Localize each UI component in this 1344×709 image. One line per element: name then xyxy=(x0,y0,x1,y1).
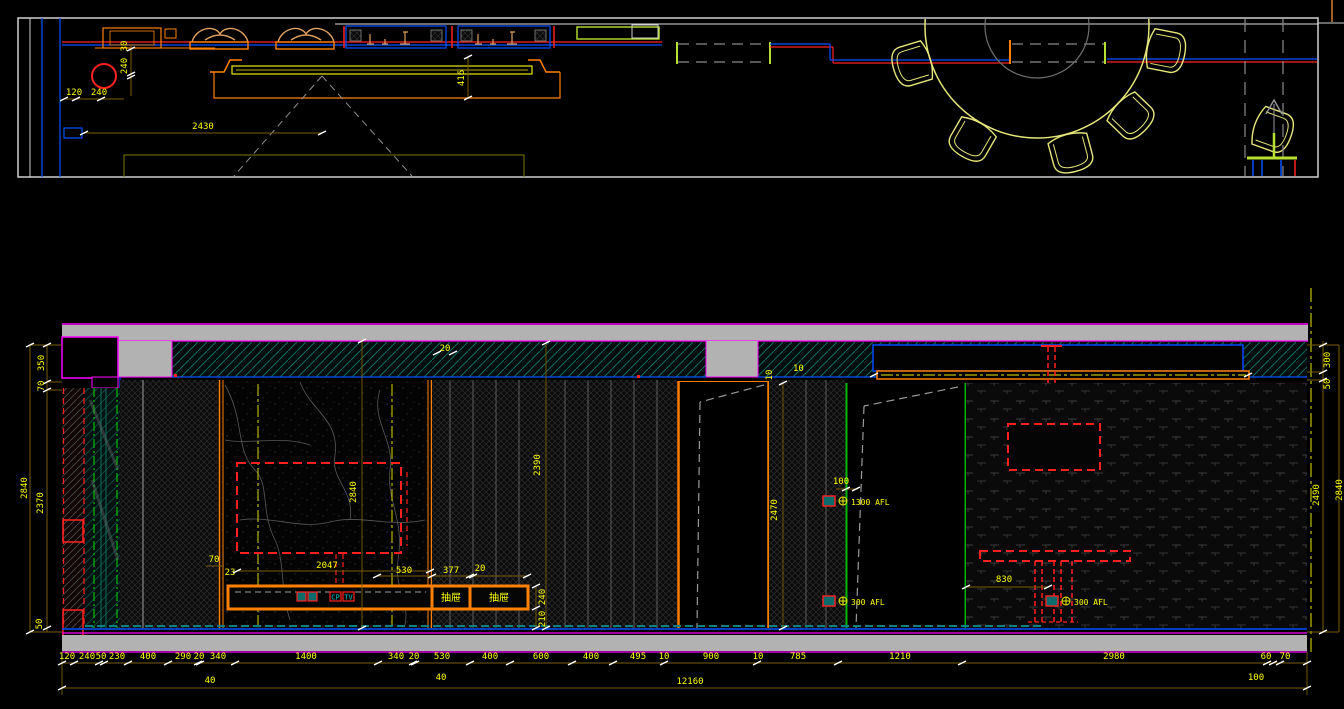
cad-drawing-canvas: 120 240 240 30 2430 416 xyxy=(0,0,1344,709)
dim-416: 416 xyxy=(457,70,467,86)
dim-row1: 495 xyxy=(630,652,646,662)
dim-40a: 40 xyxy=(205,676,216,686)
dim-30-v: 30 xyxy=(120,41,130,52)
dim-row1: 530 xyxy=(434,652,450,662)
dim-row1: 10 xyxy=(753,652,764,662)
dim-row1: 1210 xyxy=(889,652,911,662)
wall-panel-a xyxy=(120,380,218,628)
dim-row1: 60 xyxy=(1261,652,1272,662)
door-1 xyxy=(678,381,769,628)
cp-label: CP xyxy=(331,594,339,602)
ceiling-column-mid xyxy=(706,341,758,377)
dim-row1: 400 xyxy=(583,652,599,662)
dim-240: 240 xyxy=(538,589,548,605)
wall-left-column xyxy=(62,388,85,636)
dim-row1: 785 xyxy=(790,652,806,662)
dim-row1: 120 xyxy=(59,652,75,662)
outlet-icon xyxy=(297,592,306,601)
dim-50-right: 50 xyxy=(1323,379,1333,390)
socket-height-label: 300 AFL xyxy=(1074,598,1108,607)
dim-70: 70 xyxy=(37,381,47,392)
dim-row1: 900 xyxy=(703,652,719,662)
dim-120: 120 xyxy=(66,88,82,98)
dim-210: 210 xyxy=(538,611,548,627)
dim-row1: 400 xyxy=(482,652,498,662)
socket-table: 300 AFL xyxy=(1046,596,1108,607)
wall-right-brick xyxy=(966,383,1307,628)
dim-830: 830 xyxy=(996,575,1012,585)
dim-row1: 340 xyxy=(210,652,226,662)
dim-20-top: 20 xyxy=(440,344,451,354)
dim-100b: 100 xyxy=(1248,673,1264,683)
dim-50-left: 50 xyxy=(35,619,45,630)
dim-row1: 2980 xyxy=(1103,652,1125,662)
left-dimensions: 350 70 2840 2370 50 xyxy=(20,343,62,634)
dim-row1: 10 xyxy=(659,652,670,662)
cad-drawing: 120 240 240 30 2430 416 xyxy=(0,0,1344,709)
appliance-outline xyxy=(1008,424,1100,470)
drawer-label: 抽屉 xyxy=(489,591,509,604)
dim-2390: 2390 xyxy=(533,454,543,476)
dim-2047: 2047 xyxy=(316,561,338,571)
tv-label: TV xyxy=(344,594,353,602)
dim-row1: 290 xyxy=(175,652,191,662)
bottom-dimensions: 120 240 50 230 400 290 20 340 1400 340 2… xyxy=(58,652,1311,695)
tv-console: CP TV 抽屉 抽屉 xyxy=(228,586,528,609)
dim-row1: 340 xyxy=(388,652,404,662)
dim-row1: 400 xyxy=(140,652,156,662)
dim-2840-marble: 2840 xyxy=(349,481,359,503)
floor-slab xyxy=(62,626,1307,652)
dim-2840-left: 2840 xyxy=(20,477,30,499)
dim-240: 240 xyxy=(91,88,107,98)
elevation-view: CP TV 抽屉 抽屉 1300 AFL 300 AFL 300 AFL xyxy=(20,288,1344,695)
dim-350: 350 xyxy=(37,355,47,371)
dim-2490: 2490 xyxy=(1312,484,1322,506)
dim-2840-right: 2840 xyxy=(1335,479,1344,501)
right-dimensions: 300 50 2490 2840 xyxy=(1307,341,1344,634)
dim-row1: 230 xyxy=(109,652,125,662)
dim-20-console: 20 xyxy=(475,564,486,574)
dim-240-v: 240 xyxy=(120,58,130,74)
dim-2430: 2430 xyxy=(192,122,214,132)
dim-row1: 600 xyxy=(533,652,549,662)
switch-height-label: 1300 AFL xyxy=(851,498,890,507)
drawer-label: 抽屉 xyxy=(441,591,461,604)
dim-row1: 20 xyxy=(194,652,205,662)
switch-door2: 1300 AFL xyxy=(823,496,890,507)
socket-door2: 300 AFL xyxy=(823,596,885,607)
dim-row1: 1400 xyxy=(295,652,317,662)
dim-2370: 2370 xyxy=(36,492,46,514)
dim-total-12160: 12160 xyxy=(676,677,703,687)
plan-view-strip: 120 240 240 30 2430 416 xyxy=(18,0,1344,177)
dim-300: 300 xyxy=(1323,352,1333,368)
socket-height-label: 300 AFL xyxy=(851,598,885,607)
ceiling-beam-left xyxy=(62,337,118,378)
dim-530: 530 xyxy=(396,566,412,576)
outlet-icon xyxy=(308,592,317,601)
ceiling-column-left xyxy=(118,341,172,377)
wall-glass-panel xyxy=(85,388,120,628)
dim-row1: 240 xyxy=(79,652,95,662)
dim-row1: 20 xyxy=(409,652,420,662)
dim-10b: 10 xyxy=(793,364,804,374)
ceiling-recess xyxy=(873,345,1243,371)
dim-row1: 50 xyxy=(96,652,107,662)
dim-377: 377 xyxy=(443,566,459,576)
dim-row1: 70 xyxy=(1280,652,1291,662)
dim-100: 100 xyxy=(833,477,849,487)
dim-40b: 40 xyxy=(436,673,447,683)
dim-2470: 2470 xyxy=(770,499,780,521)
dim-10a: 10 xyxy=(765,370,775,381)
dim-70-console: 70 xyxy=(209,555,220,565)
